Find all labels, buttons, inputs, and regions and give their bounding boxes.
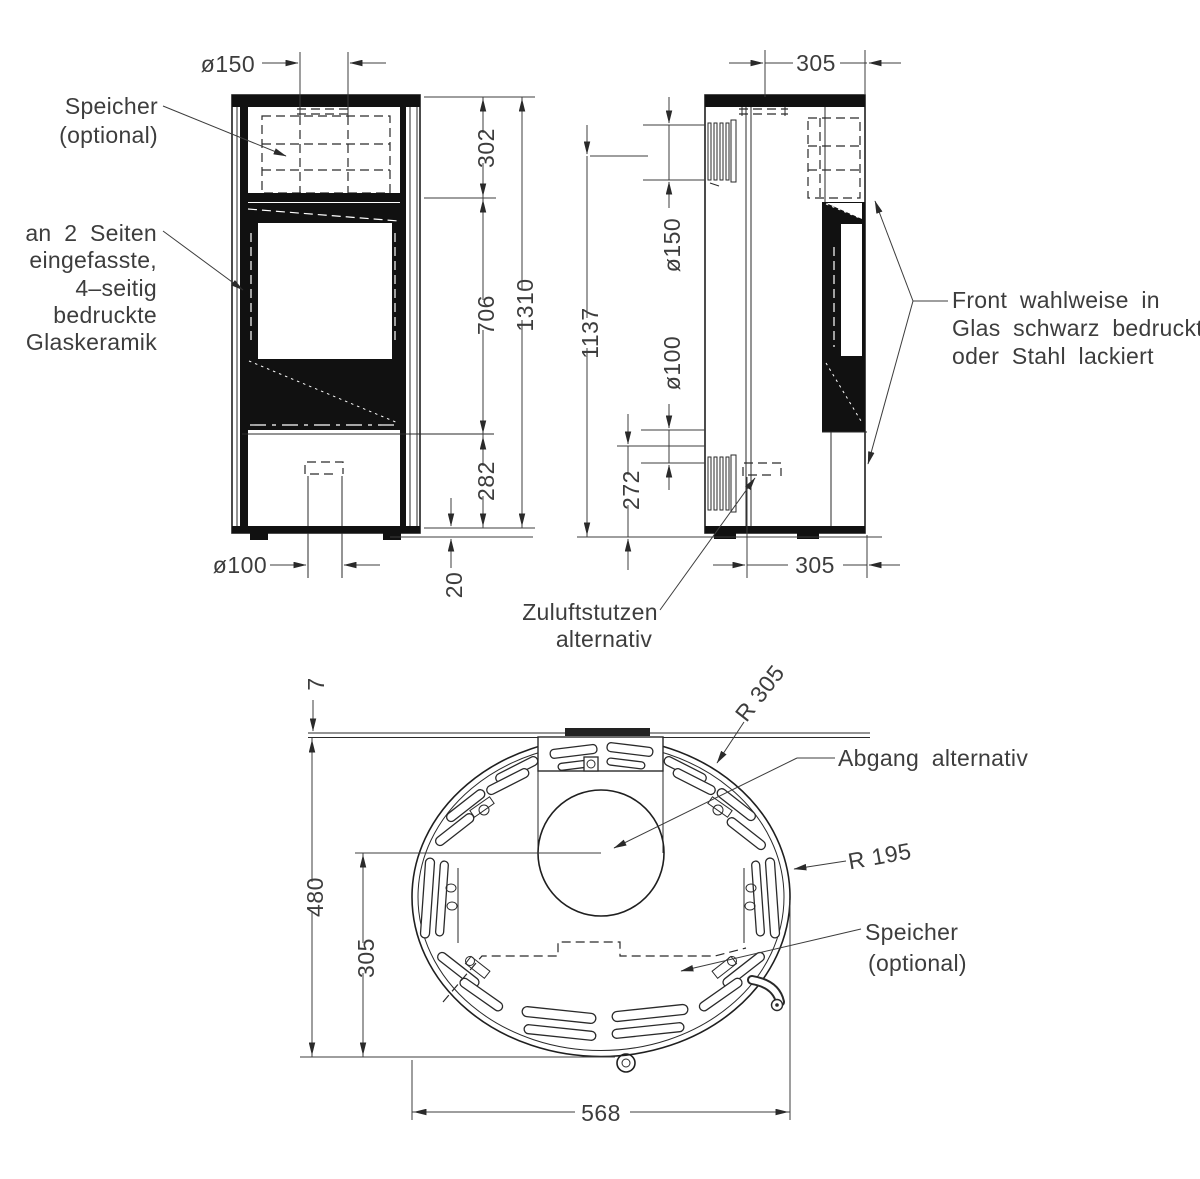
dim-plan-flue-center-offset: 305	[353, 938, 379, 978]
label-front-finish-line2: Glas schwarz bedruckt	[952, 315, 1200, 341]
glass-door-front	[248, 203, 400, 430]
front-foot-left	[250, 533, 268, 540]
dim-plan-depth: 480	[302, 877, 328, 917]
label-storage-front-line2: (optional)	[59, 122, 158, 148]
dim-plan-front-radius: R 305	[730, 660, 790, 726]
label-flue-alternative: Abgang alternativ	[838, 745, 1028, 771]
label-storage-plan-line1: Speicher	[865, 919, 958, 945]
dim-front-glass-section: 706	[473, 295, 499, 335]
label-air-inlet-line2: alternativ	[556, 626, 653, 652]
dim-front-air-diameter: ø100	[213, 552, 267, 578]
storage-module-side	[808, 118, 860, 198]
side-foot-left	[714, 533, 736, 539]
dim-side-air-offset-bottom: 305	[795, 552, 835, 578]
dim-front-top-section: 302	[473, 128, 499, 168]
label-glass-line3: 4–seitig	[75, 275, 157, 301]
label-air-inlet-line1: Zuluftstutzen	[522, 599, 658, 625]
dim-plan-width: 568	[581, 1100, 621, 1126]
air-inlet-front	[305, 462, 343, 578]
dim-front-flue-diameter: ø150	[201, 51, 255, 77]
plan-view	[308, 728, 870, 1072]
rear-flue-outlet-slats	[708, 120, 736, 186]
dim-side-air-height: 272	[618, 470, 644, 510]
label-glass-line1: an 2 Seiten	[25, 220, 157, 246]
rear-air-outlet-slats	[708, 455, 736, 512]
dim-side-flue-offset-top: 305	[796, 50, 836, 76]
dim-side-flue-height: 1137	[577, 307, 603, 358]
label-glass-line4: bedruckte	[53, 302, 157, 328]
dim-plan-side-radius: R 195	[846, 838, 913, 875]
door-handle	[752, 980, 783, 1011]
label-glass-line2: eingefasste,	[29, 247, 157, 273]
storage-outline-plan	[443, 942, 746, 1002]
front-view	[232, 95, 494, 578]
dim-side-air-diameter: ø100	[659, 336, 685, 390]
annotation-labels: Speicher (optional) an 2 Seiten eingefas…	[25, 93, 1200, 976]
dim-front-base-section: 282	[473, 461, 499, 501]
flue-housing-plan	[538, 728, 664, 916]
side-view	[705, 95, 867, 539]
side-foot-right	[797, 533, 819, 539]
dim-plan-wall-gap: 7	[303, 677, 329, 690]
stove-dimension-drawing: ø150 302 706 282 1310 20 ø100	[0, 0, 1200, 1179]
air-inlet-side	[743, 463, 781, 476]
technical-drawing-page: ø150 302 706 282 1310 20 ø100	[0, 0, 1200, 1179]
label-front-finish-line1: Front wahlweise in	[952, 287, 1160, 313]
dim-front-foot-height: 20	[441, 572, 467, 599]
label-storage-plan-line2: (optional)	[868, 950, 967, 976]
label-storage-front-line1: Speicher	[65, 93, 158, 119]
door-hinge-details	[446, 797, 756, 978]
label-glass-line5: Glaskeramik	[26, 329, 157, 355]
dim-front-total-height: 1310	[512, 278, 538, 331]
front-knob	[617, 1054, 635, 1072]
vent-slots	[420, 755, 780, 1041]
label-front-finish-line3: oder Stahl lackiert	[952, 343, 1154, 369]
dim-side-flue-diameter: ø150	[659, 218, 685, 272]
flue-collar-front	[297, 107, 351, 116]
